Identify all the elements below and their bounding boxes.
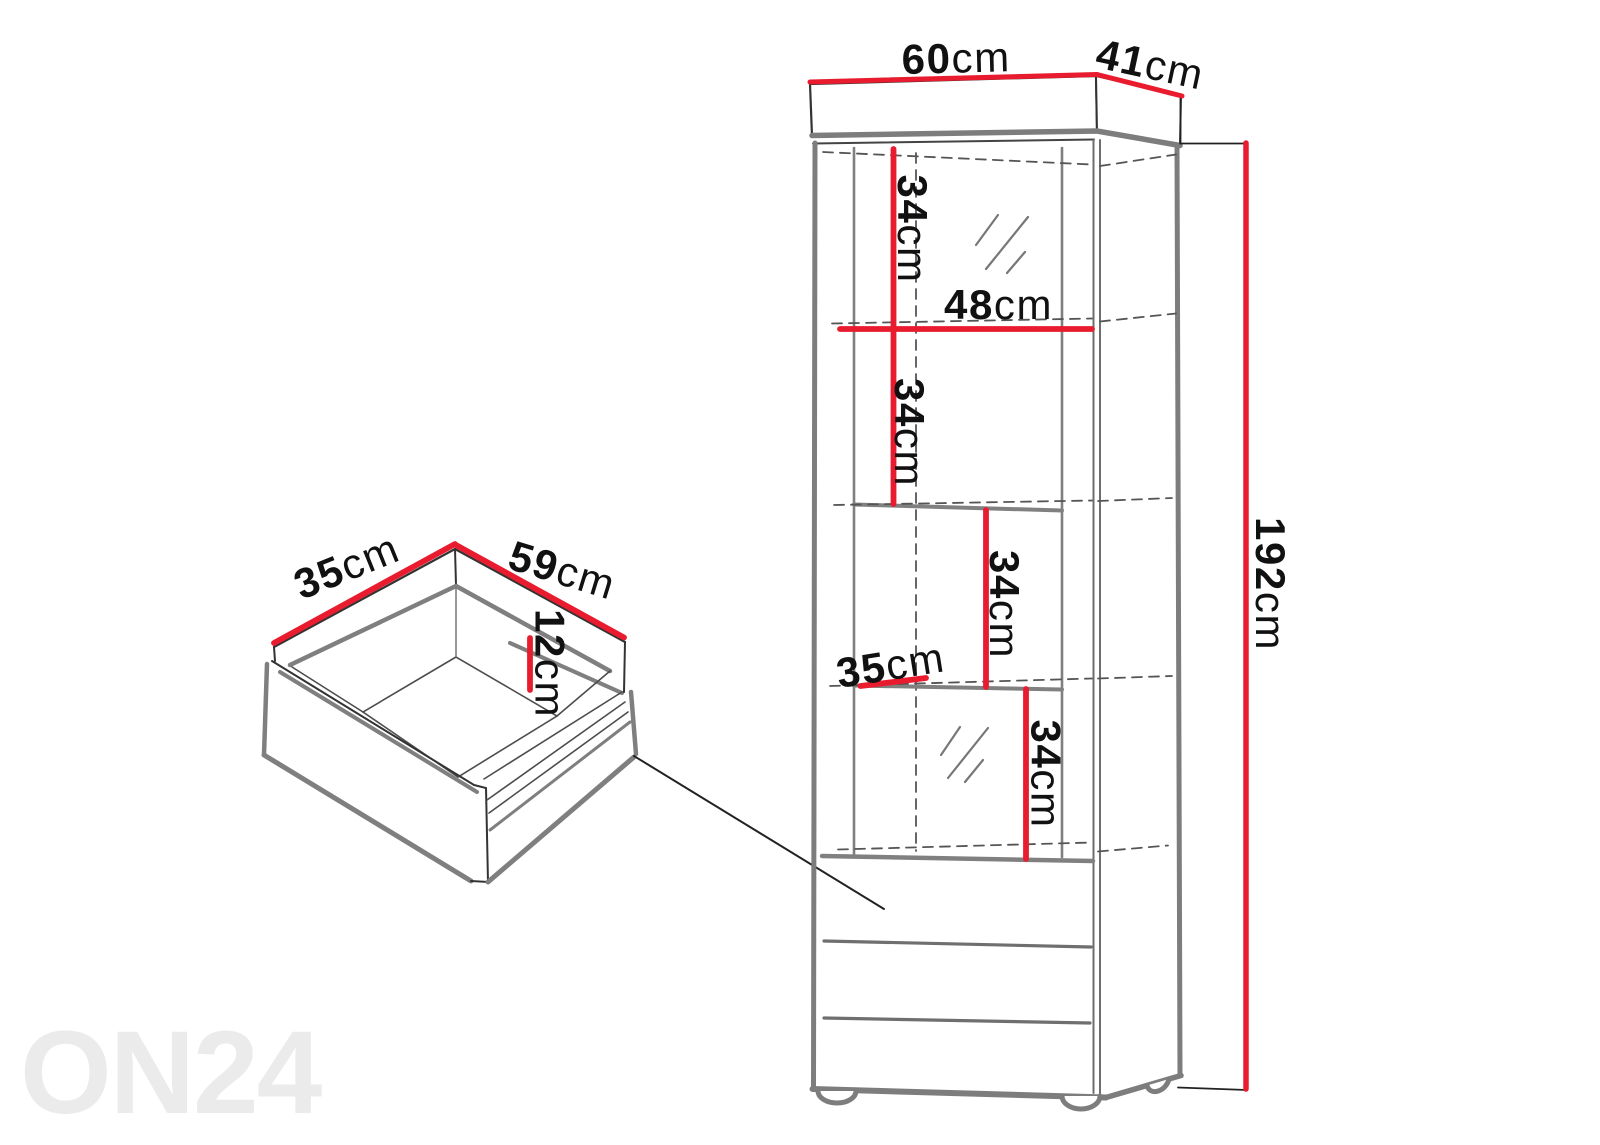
svg-text:34cm: 34cm (1022, 720, 1069, 829)
svg-text:48cm: 48cm (944, 281, 1053, 328)
svg-text:192cm: 192cm (1247, 517, 1294, 651)
svg-text:34cm: 34cm (889, 175, 936, 284)
svg-text:ON24: ON24 (20, 1007, 322, 1139)
svg-text:60cm: 60cm (901, 33, 1011, 83)
svg-text:34cm: 34cm (886, 378, 933, 487)
svg-text:34cm: 34cm (981, 550, 1028, 659)
svg-text:12cm: 12cm (526, 609, 573, 718)
